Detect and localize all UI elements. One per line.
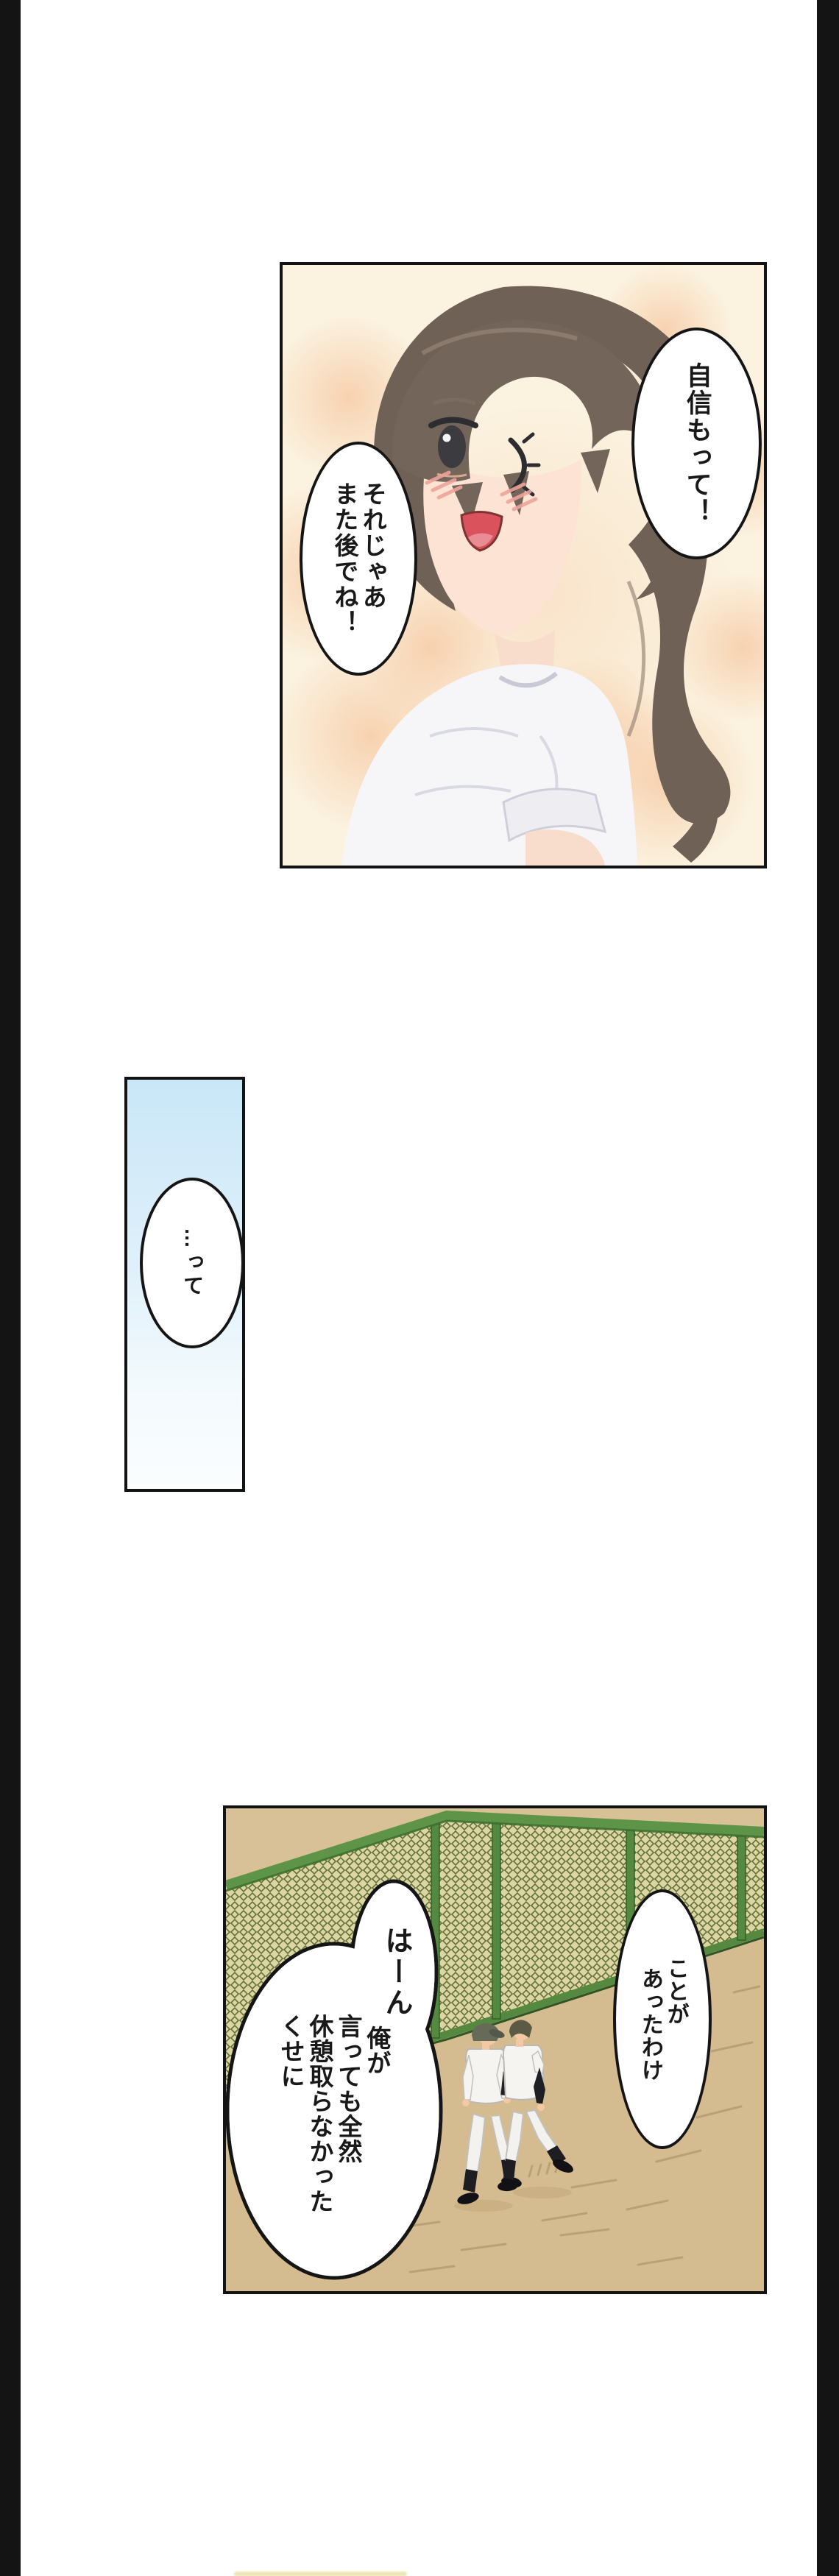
panel-girl: 自信もって！ それじゃあ また後でね！ (280, 262, 767, 868)
speech-bubble-happened: ことが あったわけ (613, 1889, 712, 2149)
bubble-text-column: ことが (662, 1957, 688, 2081)
bubble-text-column: それじゃあ (358, 481, 386, 636)
speech-bubble-see-you: それじゃあ また後でね！ (300, 442, 417, 676)
speech-bubble-retort: はーん 俺が 言っても全然 休憩取らなかった くせに (226, 1878, 444, 2282)
bubble-text-column: また後でね！ (330, 481, 358, 636)
manga-page: 自信もって！ それじゃあ また後でね！ …って (0, 0, 839, 2576)
bubble-text-column: くせに (276, 2014, 305, 2214)
bubble-text: 自信もって！ (682, 362, 712, 526)
panel-pause: …って (124, 1077, 245, 1492)
bubble-text-column: 言っても全然 (333, 2014, 362, 2214)
speech-bubble-confidence: 自信もって！ (631, 328, 762, 559)
speech-bubble-tte: …って (140, 1178, 244, 1348)
bubble-text-column: 休憩取らなかった (305, 2014, 333, 2214)
right-letterbox-bar (817, 0, 839, 2576)
bubble-text-column: 俺が (362, 2025, 391, 2214)
bubble-text: …って (180, 1228, 204, 1298)
panel-field: ことが あったわけ はーん 俺が 言っても全然 休憩取らなかった くせに (223, 1805, 767, 2294)
bottom-page-sliver (234, 2572, 407, 2576)
bubble-text-column: あったわけ (637, 1967, 662, 2081)
left-letterbox-bar (0, 0, 21, 2576)
